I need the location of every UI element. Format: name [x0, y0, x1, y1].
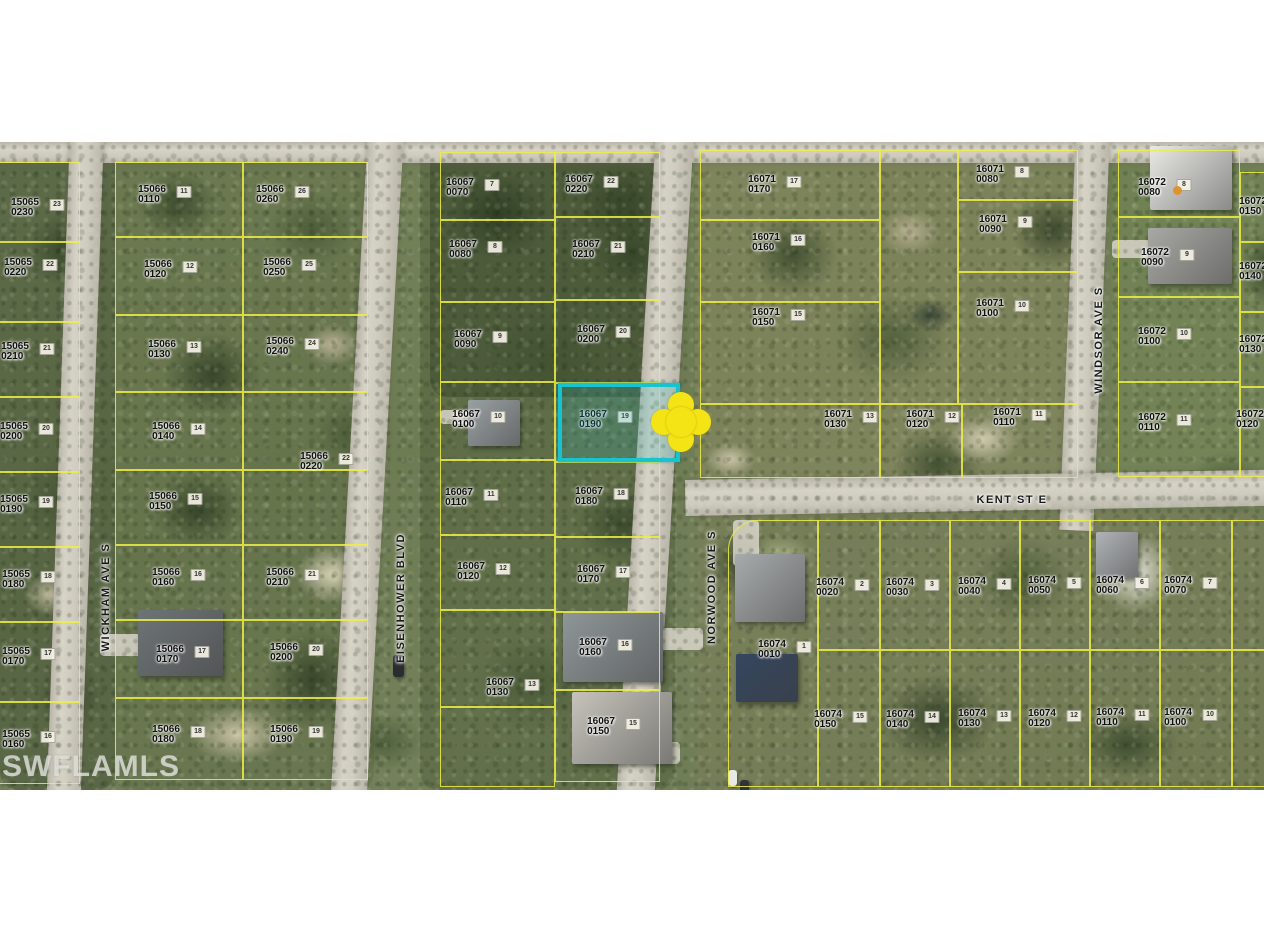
swflamls-watermark: SWFLAMLS: [2, 750, 180, 784]
lot-number-tag: 14: [925, 711, 940, 723]
lot-number-tag: 16: [618, 639, 633, 651]
parcel-label: 16074 0060: [1096, 576, 1124, 596]
parcel-label: 15066 0140: [152, 422, 180, 442]
lot-number-tag: 25: [302, 259, 317, 271]
lot-number-tag: 17: [195, 646, 210, 658]
parcel-label: 16071 0130: [824, 410, 852, 430]
parcel-label: 15065 0220: [4, 258, 32, 278]
subject-property-marker: [658, 399, 704, 445]
lot-number-tag: 10: [1015, 300, 1030, 312]
lot-number-tag: 6: [1135, 577, 1150, 589]
parcel-label: 16067 0160: [579, 638, 607, 658]
parcel-label: 16067 0180: [575, 487, 603, 507]
parcel-boundary: [958, 200, 1078, 272]
lot-number-tag: 8: [1015, 166, 1030, 178]
parcel-label: 16067 0210: [572, 240, 600, 260]
parcel-label: 15065 0230: [11, 198, 39, 218]
lot-number-tag: 18: [614, 488, 629, 500]
lot-number-tag: 13: [525, 679, 540, 691]
lot-number-tag: 21: [305, 569, 320, 581]
lot-number-tag: 11: [177, 186, 192, 198]
parcel-label: 16074 0020: [816, 578, 844, 598]
parcel-label: 16072 0130: [1239, 335, 1264, 355]
lot-number-tag: 3: [925, 579, 940, 591]
parcel-label: 16072 0080: [1138, 178, 1166, 198]
lot-number-tag: 15: [853, 711, 868, 723]
parcel-label: 16067 0130: [486, 678, 514, 698]
lot-number-tag: 21: [40, 343, 55, 355]
lot-number-tag: 19: [309, 726, 324, 738]
lot-number-tag: 13: [187, 341, 202, 353]
lot-number-tag: 7: [1203, 577, 1218, 589]
parcel-boundary: [243, 698, 368, 780]
parcel-boundary: [700, 220, 880, 302]
parcel-label: 15065 0200: [0, 422, 28, 442]
parcel-label: 16067 0070: [446, 178, 474, 198]
lot-number-tag: 10: [1177, 328, 1192, 340]
parcel-label: 15066 0120: [144, 260, 172, 280]
mls-map-page: 15065 02302315065 02202215065 0210211506…: [0, 0, 1264, 948]
parcel-boundary: [880, 150, 958, 404]
lot-number-tag: 11: [484, 489, 499, 501]
aerial-map: 15065 02302315065 02202215065 0210211506…: [0, 142, 1264, 790]
lot-number-tag: 22: [339, 453, 354, 465]
parcel-label: 16067 0120: [457, 562, 485, 582]
lot-number-tag: 16: [791, 234, 806, 246]
lot-number-tag: 26: [295, 186, 310, 198]
parcel-boundary: [555, 462, 660, 537]
street-label: NORWOOD AVE S: [706, 530, 718, 644]
parcel-label: 16067 0170: [577, 565, 605, 585]
lot-number-tag: 9: [1180, 249, 1195, 261]
lot-number-tag: 15: [626, 718, 641, 730]
parcel-label: 16072 0100: [1138, 327, 1166, 347]
parcel-label: 15066 0190: [270, 725, 298, 745]
lot-number-tag: 22: [43, 259, 58, 271]
lot-number-tag: 17: [41, 648, 56, 660]
parcel-label: 15065 0160: [2, 730, 30, 750]
lot-number-tag: 22: [604, 176, 619, 188]
lot-number-tag: 16: [41, 731, 56, 743]
parcel-label: 16074 0010: [758, 640, 786, 660]
lot-number-tag: 2: [855, 579, 870, 591]
parcel-boundary: [243, 315, 368, 392]
parcel-boundary: [555, 537, 660, 612]
parcel-boundary: [243, 470, 368, 545]
parcel-label: 16067 0110: [445, 488, 473, 508]
parcel-label: 16071 0170: [748, 175, 776, 195]
parcel-label: 16067 0090: [454, 330, 482, 350]
parcel-label: 15065 0180: [2, 570, 30, 590]
parcel-label: 16074 0130: [958, 709, 986, 729]
lot-number-tag: 23: [50, 199, 65, 211]
lot-number-tag: 12: [945, 411, 960, 423]
parcel-boundary: [555, 300, 660, 383]
parcel-label: 16067 0220: [565, 175, 593, 195]
parcel-label: 16072 0110: [1138, 413, 1166, 433]
lot-number-tag: 4: [997, 578, 1012, 590]
parcel-boundary: [555, 612, 660, 690]
parcel-label: 15066 0210: [266, 568, 294, 588]
lot-number-tag: 1: [797, 641, 812, 653]
parcel-label: 16071 0100: [976, 299, 1004, 319]
lot-number-tag: 11: [1032, 409, 1047, 421]
parcel-label: 16074 0110: [1096, 708, 1124, 728]
lot-number-tag: 13: [863, 411, 878, 423]
lot-number-tag: 15: [791, 309, 806, 321]
lot-number-tag: 18: [191, 726, 206, 738]
parcel-label: 15066 0110: [138, 185, 166, 205]
lot-number-tag: 16: [191, 569, 206, 581]
parcel-label: 16074 0070: [1164, 576, 1192, 596]
parcel-label: 15066 0260: [256, 185, 284, 205]
street-label: WICKHAM AVE S: [100, 543, 112, 652]
parcel-label: 16067 0080: [449, 240, 477, 260]
parcel-label: 15065 0210: [1, 342, 29, 362]
lot-number-tag: 12: [496, 563, 511, 575]
parcel-label: 15065 0170: [2, 647, 30, 667]
parcel-label: 16074 0030: [886, 578, 914, 598]
parcel-label: 15066 0200: [270, 643, 298, 663]
parcel-label: 16071 0080: [976, 165, 1004, 185]
lot-number-tag: 13: [997, 710, 1012, 722]
parcel-label: 16074 0150: [814, 710, 842, 730]
lot-number-tag: 10: [491, 411, 506, 423]
lot-number-tag: 7: [485, 179, 500, 191]
parcel-label: 16072 0120: [1236, 410, 1264, 430]
lot-number-tag: 20: [616, 326, 631, 338]
lot-number-tag: 12: [183, 261, 198, 273]
parcel-boundary: [243, 620, 368, 698]
lot-number-tag: 10: [1203, 709, 1218, 721]
parcel-label: 15066 0240: [266, 337, 294, 357]
lot-number-tag: 5: [1067, 577, 1082, 589]
lot-number-tag: 17: [616, 566, 631, 578]
lot-number-tag: 14: [191, 423, 206, 435]
parcel-boundary: [440, 220, 555, 302]
parcel-boundary: [115, 315, 243, 392]
parcel-label: 15066 0220: [300, 452, 328, 472]
parcel-label: 15066 0130: [148, 340, 176, 360]
parcel-boundary: [440, 707, 555, 787]
parcel-label: 16072 0090: [1141, 248, 1169, 268]
parcel-label: 15066 0150: [149, 492, 177, 512]
marker-petal: [666, 407, 696, 437]
parcel-boundary: [700, 404, 880, 478]
street-label: EISENHOWER BLVD: [395, 533, 407, 663]
lot-number-tag: 9: [493, 331, 508, 343]
parcel-boundary: [0, 242, 80, 322]
parcel-label: 16067 0100: [452, 410, 480, 430]
parcel-label: 15066 0160: [152, 568, 180, 588]
street-label: KENT ST E: [977, 494, 1048, 506]
lot-number-tag: 19: [39, 496, 54, 508]
parcel-boundary: [243, 545, 368, 620]
parcel-label: 16071 0110: [993, 408, 1021, 428]
parcel-label: 16074 0120: [1028, 709, 1056, 729]
parcel-boundary: [1232, 650, 1264, 787]
parcel-label: 16074 0050: [1028, 576, 1056, 596]
parcel-boundary: [1118, 382, 1240, 477]
parcel-label: 15066 0180: [152, 725, 180, 745]
parcel-label: 16071 0160: [752, 233, 780, 253]
lot-number-tag: 15: [188, 493, 203, 505]
parcel-boundary: [115, 470, 243, 545]
poi-dot: [1173, 186, 1182, 195]
parcel-label: 16071 0090: [979, 215, 1007, 235]
parcel-label: 16067 0200: [577, 325, 605, 345]
lot-number-tag: 20: [39, 423, 54, 435]
lot-number-tag: 11: [1135, 709, 1150, 721]
lot-number-tag: 17: [787, 176, 802, 188]
parcel-boundary: [115, 162, 243, 237]
parcel-label: 16074 0040: [958, 577, 986, 597]
parcel-label: 15066 0170: [156, 645, 184, 665]
street-label: WINDSOR AVE S: [1093, 286, 1105, 394]
lot-number-tag: 8: [488, 241, 503, 253]
parcel-boundary: [115, 237, 243, 315]
parcel-boundary: [958, 272, 1078, 404]
lot-number-tag: 18: [41, 571, 56, 583]
lot-number-tag: 12: [1067, 710, 1082, 722]
parcel-label: 15066 0250: [263, 258, 291, 278]
parcel-label: 16072 0150: [1239, 197, 1264, 217]
parcel-label: 16072 0140: [1239, 262, 1264, 282]
parcel-boundary: [1232, 520, 1264, 650]
parcel-boundary: [243, 237, 368, 315]
parcel-label: 16067 0150: [587, 717, 615, 737]
parcel-label: 15065 0190: [0, 495, 28, 515]
parcel-boundary: [555, 217, 660, 300]
parcel-boundary: [1240, 387, 1264, 477]
lot-number-tag: 20: [309, 644, 324, 656]
parcel-label: 16071 0120: [906, 410, 934, 430]
lot-number-tag: 21: [611, 241, 626, 253]
lot-number-tag: 9: [1018, 216, 1033, 228]
lot-number-tag: 24: [305, 338, 320, 350]
lot-number-tag: 11: [1177, 414, 1192, 426]
parcel-label: 16074 0140: [886, 710, 914, 730]
parcel-label: 16074 0100: [1164, 708, 1192, 728]
parcel-label: 16071 0150: [752, 308, 780, 328]
